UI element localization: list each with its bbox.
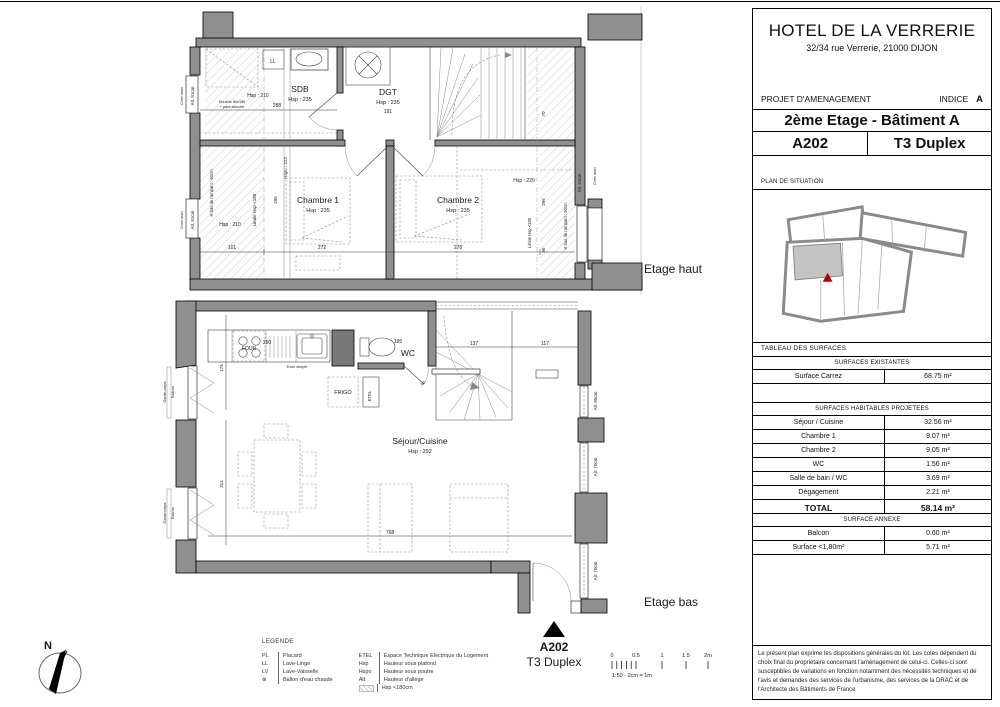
plan-label: Garde-corps [163,381,167,402]
dormer-recess [588,208,602,260]
plan-label: 191 [384,109,393,115]
plan-label: 70 [541,111,546,117]
legend-label: Lave-Linge [283,661,310,667]
plan-label: DGT [379,87,397,97]
legend-column-2: ETELEspace Technique Electrique du Logem… [359,652,488,692]
door-swing [423,146,435,176]
radiator [536,370,558,378]
plan-label: Limite Hsp <180 [527,217,532,248]
surface-row-value: 1.56 m² [885,458,991,471]
indice-label: INDICE [939,94,968,104]
surface-row-label: Chambre 2 [753,444,885,457]
unit-marker-number: A202 [540,640,569,654]
plan-label: Hspo : 223 [283,157,288,179]
surfaces-projected-header: SURFACES HABITABLES PROJETEES [753,403,991,416]
plan-label: Chambre 2 [437,195,479,205]
legend-divider [379,676,380,684]
dining-table [238,424,316,528]
duct [332,330,354,366]
scale-tick-label: 1.5 [682,653,690,659]
scale-tick-label: 0.5 [632,653,640,659]
project-type-label: PROJET D'AMENAGEMENT [761,94,871,104]
legend-abbr: ETEL [359,653,379,659]
lower-floor-plan [167,301,607,613]
surface-row: Balcon0.60 m² [753,527,991,541]
plan-label: Alt. 85cm [593,391,598,410]
plan-label: ETEL [367,390,372,401]
toilet [360,338,395,356]
plan-label: Alt. 91cm [190,210,195,229]
surface-row-value: 32.56 m² [885,416,991,429]
legend-abbr: Hspo [359,669,379,675]
surface-row-value: 5.71 m² [885,541,991,554]
door-swing [424,366,428,384]
surface-row-value: 9.07 m² [885,430,991,443]
plan-label: Balcon [171,386,175,398]
situation-plan [763,195,981,335]
floor-plan-drawing: SDBHsp : 235Hsp : 210288LLDouche 80x180+… [0,0,752,707]
low-ceiling-hatch [527,47,575,140]
scale-note: 1:50 - 2cm = 1m [612,673,652,679]
plan-label: Séjour/Cuisine [392,436,448,446]
plan-label: 195 [394,339,403,345]
legend-label: Lave-Vaisselle [283,669,318,675]
surface-row-label: Chambre 1 [753,430,885,443]
surfaces-spacer-row [753,384,991,403]
legend-divider [377,684,378,692]
low-ceiling-hatch [205,47,263,135]
plan-label: 288 [273,103,282,109]
plan-label: Alt. 70cm [593,561,598,580]
legend-abbr: Alt [359,677,379,683]
plan-label: Chien assis [593,167,597,185]
plan-label: Hsp : 220 [513,178,535,184]
legend-label: Ballon d'eau chaude [283,677,333,683]
plan-label: Balcon [171,507,175,519]
plan-label: 314 [219,480,224,488]
plan-label: 296 [273,196,278,204]
plan-label: H bas de rampant : 90cm [563,202,568,250]
plan-label: 296 [541,198,546,206]
annex-header: SURFACE ANNEXE [753,514,991,527]
surface-row: Chambre 29.05 m² [753,444,991,458]
door-leaf [392,146,423,176]
legend-column-1: PLPlacardLLLave-LingeLVLave-Vaisselle⊗Ba… [262,652,333,692]
surface-row-value: 2.21 m² [885,486,991,499]
legend-abbr: LL [262,661,278,667]
staircase-lower [432,311,512,420]
plan-label: Chambre 1 [297,195,339,205]
surface-row: Surface Carrez68.75 m² [753,370,991,384]
plan-label: 60 [420,379,427,386]
staircase-upper [430,47,525,140]
plan-label: 278 [454,245,463,251]
plan-label: Hsp : 235 [446,208,470,214]
door-swing [309,117,337,130]
legend-item: AltHauteur d'allège [359,676,488,684]
legend-divider [379,652,380,660]
scale-tick-label: 0 [610,653,613,659]
caption-etage-bas: Etage bas [644,595,698,609]
door-swing [345,146,357,176]
plan-label: 96 [541,247,546,253]
surface-row: Salle de bain / WC3.69 m² [753,472,991,486]
plan-label: 272 [318,245,327,251]
indice-value: A [976,94,983,105]
surface-row-value: 3.69 m² [885,472,991,485]
plan-label: 768 [386,530,395,536]
surface-row: Séjour / Cuisine32.56 m² [753,416,991,430]
surfaces-table-title: TABLEAU DES SURFACES [761,345,846,352]
legend-divider [278,676,279,684]
plan-sheet: { "title_block": { "hotel_name": "HOTEL … [0,0,1000,707]
low-ceiling-hatch [540,140,575,279]
kitchen-counter [208,330,330,362]
plan-label: Hsp : 235 [306,208,330,214]
disclaimer: Le présent plan exprime les dispositions… [753,645,991,699]
surface-row-label: WC [753,458,885,471]
unit-location-pointer [543,621,565,637]
surfaces-table: SURFACES EXISTANTES Surface Carrez68.75 … [752,356,992,517]
legend-item: LLLave-Linge [262,660,333,668]
surface-row: Chambre 19.07 m² [753,430,991,444]
plan-label: Alt. 91cm [190,86,195,105]
plan-label: H bas de rampant : 90cm [209,169,214,217]
plan-label: WC [401,348,415,358]
plan-label: Hsp : 292 [408,449,432,455]
handrail [432,369,480,374]
bed-chambre-1 [286,178,350,270]
plan-label: Garde-corps [163,502,167,523]
surface-row: WC1.56 m² [753,458,991,472]
surfaces-rule [753,342,991,343]
plan-label: FRIGO [334,390,352,396]
surface-row-label: Séjour / Cuisine [753,416,885,429]
plan-label: LL [270,59,276,65]
dormer-window [577,206,587,262]
legend-item: LVLave-Vaisselle [262,668,333,676]
hatch-swatch-icon [359,685,374,692]
plan-label: 101 [228,245,237,251]
sofa [450,484,508,552]
plan-label: 137 [470,341,479,347]
legend-divider [278,668,279,676]
legend-item: Hsp <180cm [359,684,488,692]
plan-label: Evier simple [287,365,308,369]
highlighted-unit [793,243,842,279]
project-address: 32/34 rue Verrerie, 21000 DIJON [753,43,991,53]
scale-tick-label: 1 [660,653,663,659]
plan-label: Alt. 70cm [593,457,598,476]
scale-bar [612,661,708,669]
legend-divider [278,652,279,660]
surface-row-label: Surface <1,80m² [753,541,885,554]
floor-title: 2ème Etage - Bâtiment A [753,109,991,132]
plan-label: Hsp : 210 [247,93,269,99]
plan-label: SDB [291,84,309,94]
unit-type: T3 Duplex [868,132,991,155]
unit-marker-type: T3 Duplex [527,655,582,669]
legend-abbr: PL [262,653,278,659]
surfaces-existing-header: SURFACES EXISTANTES [753,357,991,370]
legend-label: Placard [283,653,302,659]
plan-label: + pare-douche [220,105,245,109]
legend-divider [379,668,380,676]
surface-row-label: Dégagement [753,486,885,499]
plan-label: Alt. 91cm [577,173,582,192]
plan-label: Hsp : 210 [219,222,241,228]
legend-label: Hsp <180cm [382,685,413,691]
project-title: HOTEL DE LA VERRERIE [753,21,991,41]
plan-label: Hsp : 235 [288,97,312,103]
project-type-row: PROJET D'AMENAGEMENT INDICE A [753,89,991,110]
water-heater-icon: ⊗ [262,677,278,683]
caption-etage-haut: Etage haut [644,262,703,276]
plan-label: Douche 80x180 [219,100,246,104]
legend-item: ⊗Ballon d'eau chaude [262,676,333,684]
surface-row-label: Salle de bain / WC [753,472,885,485]
plan-label: Chien assis [180,211,184,229]
compass-north-label: N [44,640,52,652]
legend-label: Hauteur d'allège [384,677,424,683]
surface-row: Surface <1,80m²5.71 m² [753,541,991,555]
plan-label: 250 [263,340,272,346]
legend-title: LEGENDE [262,638,488,645]
annex-surfaces-table: SURFACE ANNEXE Balcon0.60 m²Surface <1,8… [752,513,992,555]
legend-abbr: LV [262,669,278,675]
surface-row: Dégagement2.21 m² [753,486,991,500]
legend-item: HspoHauteur sous poutre [359,668,488,676]
sofa [368,484,412,552]
legend-divider [379,660,380,668]
legend-item: HspHauteur sous plafond [359,660,488,668]
unit-row: A202 T3 Duplex [753,132,991,156]
upper-floor-plan [186,12,642,290]
legend-label: Espace Technique Electrique du Logement [384,653,488,659]
unit-number: A202 [753,132,868,155]
plan-label: 117 [541,341,549,347]
door-leaf [357,146,388,176]
situation-plan-label: PLAN DE SITUATION [761,179,823,185]
surface-row-value: 9.05 m² [885,444,991,457]
legend-label: Hauteur sous plafond [384,661,436,667]
entry-door-swing [533,563,571,601]
legend-divider [278,660,279,668]
surface-row-value: 68.75 m² [885,370,991,383]
legend-item: PLPlacard [262,652,333,660]
situation-rule [753,189,991,190]
plan-label: Chien assis [180,87,184,105]
legend-abbr: Hsp [359,661,379,667]
plan-label: FOUR [242,346,257,352]
door-leaf [309,93,337,117]
surface-row-label: Surface Carrez [753,370,885,383]
plan-label: 174 [219,364,224,372]
legend: LEGENDE PLPlacardLLLave-LingeLVLave-Vais… [262,638,488,692]
plan-label: Limite Hsp <180 [252,193,257,226]
plan-label: Hsp : 235 [376,100,400,106]
legend-item: ETELEspace Technique Electrique du Logem… [359,652,488,660]
compass-icon [39,650,81,694]
surface-row-label: Balcon [753,527,885,540]
title-block: HOTEL DE LA VERRERIE 32/34 rue Verrerie,… [752,8,992,700]
legend-label: Hauteur sous poutre [384,669,434,675]
scale-tick-label: 2m [704,653,712,659]
surface-row-value: 0.60 m² [885,527,991,540]
